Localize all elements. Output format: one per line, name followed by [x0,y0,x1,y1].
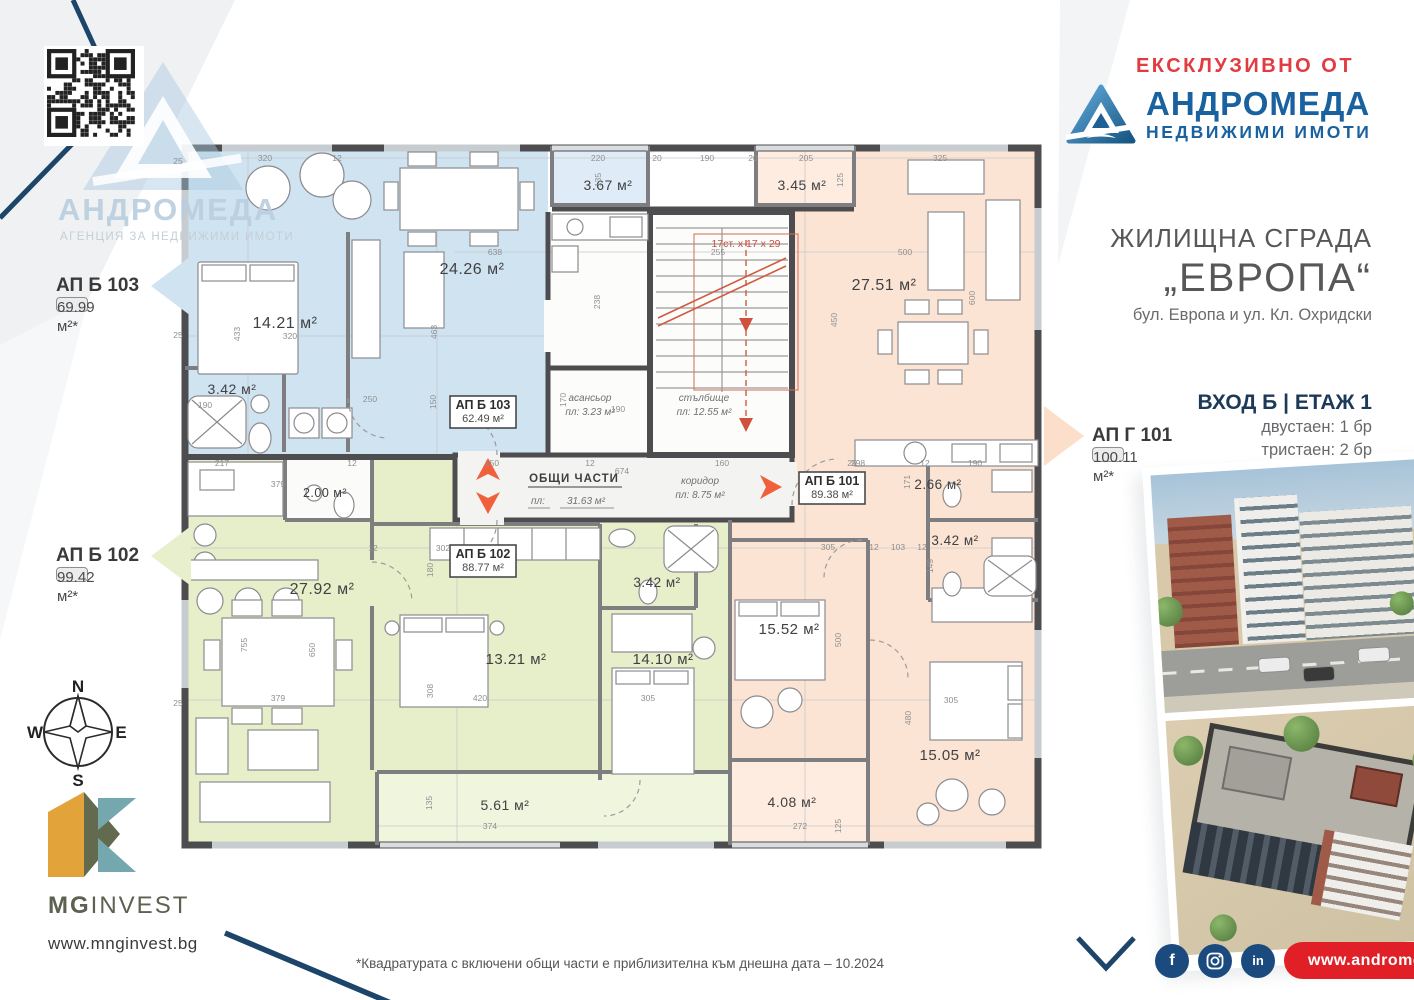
svg-text:190: 190 [968,458,982,468]
svg-text:638: 638 [488,247,502,257]
facebook-icon[interactable]: f [1155,944,1189,978]
svg-text:88.77 м²: 88.77 м² [462,562,504,574]
svg-text:27.92 м²: 27.92 м² [290,581,355,598]
svg-text:25: 25 [173,698,183,708]
corridor [455,455,792,520]
svg-text:12: 12 [869,542,879,552]
svg-text:12: 12 [585,458,595,468]
callout-ap-g101: АП Г 101 100.11 м²* [1044,406,1172,466]
watermark-tagline: АГЕНЦИЯ ЗА НЕДВИЖИМИ ИМОТИ [60,231,294,243]
callout-id: АП Г 101 [1092,425,1172,447]
svg-text:15.05 м²: 15.05 м² [919,747,980,764]
svg-text:480: 480 [903,711,913,725]
agency-logo-block: АНДРОМЕДА НЕДВИЖИМИ ИМОТИ [1066,84,1396,146]
svg-text:305: 305 [821,542,835,552]
svg-text:5.61 м²: 5.61 м² [481,797,530,813]
poster: { "colors":{"accent_red":"#E23B41","bran… [0,0,1414,1000]
linkedin-icon[interactable]: in [1241,944,1275,978]
svg-text:135: 135 [593,173,603,187]
svg-text:433: 433 [232,327,242,341]
svg-text:500: 500 [833,633,843,647]
svg-text:379: 379 [271,479,285,489]
tree-icon [1209,914,1238,943]
svg-text:W: W [27,723,44,742]
svg-text:асансьор: асансьор [568,393,611,404]
qr-code [44,46,144,146]
svg-text:14.21 м²: 14.21 м² [253,315,318,332]
svg-text:3.42 м²: 3.42 м² [208,381,257,397]
tree-icon [1172,735,1204,767]
agency-tagline: НЕДВИЖИМИ ИМОТИ [1146,121,1371,143]
car-icon [1302,666,1335,683]
developer-block: MGINVEST www.mnginvest.bg [48,792,268,954]
svg-text:217: 217 [215,458,229,468]
svg-text:150: 150 [485,458,499,468]
svg-text:420: 420 [473,693,487,703]
exclusive-label: ЕКСКЛУЗИВНО ОТ [1100,55,1390,78]
facebook-glyph: f [1169,952,1174,970]
svg-text:62.49 м²: 62.49 м² [462,413,504,425]
building-white-wing [1299,506,1414,641]
svg-text:325: 325 [933,153,947,163]
developer-name-bold: MG [48,892,91,919]
callout-ap-b103: АП Б 103 69.99 м²* [56,256,191,316]
svg-text:E: E [115,723,126,742]
svg-text:12: 12 [368,543,378,553]
svg-text:125: 125 [833,819,843,833]
svg-text:272: 272 [793,821,807,831]
svg-text:149: 149 [925,559,935,573]
svg-text:320: 320 [283,331,297,341]
developer-name-light: INVEST [91,892,190,919]
svg-text:АП Б 103: АП Б 103 [456,398,511,412]
callout-triangle-icon [151,256,191,316]
agency-website-pill[interactable]: www.andromeda.bg [1284,942,1414,979]
unit-mix-line: тристаен: 2 бр [1198,439,1373,462]
agency-name: АНДРОМЕДА [1146,87,1371,121]
car-icon [1258,656,1291,673]
svg-text:3.45 м²: 3.45 м² [778,177,827,193]
entrance-title: ВХОД Б | ЕТАЖ 1 [1198,390,1373,416]
svg-text:пл: 8.75 м²: пл: 8.75 м² [675,490,725,501]
project-type: ЖИЛИЩНА СГРАДА [1110,222,1372,254]
svg-text:305: 305 [641,693,655,703]
svg-text:3.42 м²: 3.42 м² [931,533,978,548]
svg-text:АП Б 102: АП Б 102 [456,547,511,561]
svg-text:пл: 12.55 м²: пл: 12.55 м² [677,407,732,418]
svg-text:ОБЩИ ЧАСТИ: ОБЩИ ЧАСТИ [529,473,619,485]
callout-triangle-icon [151,526,191,586]
callout-area: 99.42 м²* [56,567,88,582]
svg-text:374: 374 [483,821,497,831]
building-facade-white [1311,829,1413,920]
svg-text:20: 20 [748,153,758,163]
svg-text:190: 190 [198,400,212,410]
svg-text:S: S [72,771,83,790]
instagram-glyph [1206,952,1224,970]
linkedin-glyph: in [1252,953,1264,968]
svg-text:12: 12 [347,458,357,468]
svg-text:89.38 м²: 89.38 м² [811,489,853,501]
svg-text:2.66 м²: 2.66 м² [914,477,961,492]
svg-text:25: 25 [847,458,857,468]
svg-text:коридор: коридор [681,476,719,487]
callout-id: АП Б 102 [56,545,139,567]
project-address: бул. Европа и ул. Кл. Охридски [1110,302,1372,328]
project-block: ЖИЛИЩНА СГРАДА „ЕВРОПА“ бул. Европа и ул… [1110,222,1372,328]
svg-text:674: 674 [615,466,629,476]
svg-text:103: 103 [891,542,905,552]
svg-text:500: 500 [898,247,912,257]
svg-text:180: 180 [425,563,435,577]
svg-text:600: 600 [967,291,977,305]
social-links-row: f in www.andromeda.bg [1155,942,1414,979]
svg-text:12: 12 [917,542,927,552]
callout-id: АП Б 103 [56,275,139,297]
building-renders-card [1142,450,1414,972]
svg-text:пл: 3.23 м²: пл: 3.23 м² [565,407,615,418]
svg-text:150: 150 [428,395,438,409]
project-name: „ЕВРОПА“ [1110,254,1372,302]
callout-triangle-icon [1044,406,1084,466]
mginvest-logo-icon [48,792,140,877]
svg-text:пл:: пл: [531,496,545,507]
developer-name: MGINVEST [48,892,268,920]
unit-mix-line: двустаен: 1 бр [1198,416,1373,439]
svg-text:4.08 м²: 4.08 м² [768,794,817,810]
svg-text:3.42 м²: 3.42 м² [633,575,680,590]
svg-text:220: 220 [591,153,605,163]
svg-text:190: 190 [700,153,714,163]
svg-text:14.10 м²: 14.10 м² [632,651,693,668]
svg-text:12: 12 [920,458,930,468]
svg-text:255: 255 [711,247,725,257]
building-brick-tower [1167,515,1239,649]
svg-text:20: 20 [652,153,662,163]
svg-text:305: 305 [944,695,958,705]
svg-text:27.51 м²: 27.51 м² [852,277,917,294]
building-white-tower [1234,495,1306,645]
svg-text:170: 170 [558,393,568,407]
developer-website[interactable]: www.mnginvest.bg [48,934,268,954]
watermark-name: АНДРОМЕДА [58,192,278,227]
svg-text:135: 135 [424,796,434,810]
svg-text:2.00 м²: 2.00 м² [303,486,347,500]
svg-text:320: 320 [258,153,272,163]
callout-area: 100.11 м²* [1092,447,1124,462]
svg-text:302: 302 [436,543,450,553]
svg-text:250: 250 [363,394,377,404]
svg-text:125: 125 [835,173,845,187]
svg-text:12: 12 [332,153,342,163]
svg-text:755: 755 [239,638,249,652]
svg-text:379: 379 [271,693,285,703]
svg-text:308: 308 [425,684,435,698]
svg-text:15.52 м²: 15.52 м² [758,621,819,638]
disclaimer: *Квадратурата с включени общи части е пр… [320,956,920,971]
svg-text:13.21 м²: 13.21 м² [485,651,546,668]
svg-text:24.26 м²: 24.26 м² [440,261,505,278]
svg-text:АП Б 101: АП Б 101 [805,474,860,488]
svg-text:стълбище: стълбище [679,392,730,404]
andromeda-triangle-logo-icon [1066,84,1136,146]
instagram-icon[interactable] [1198,944,1232,978]
svg-text:238: 238 [592,295,602,309]
building-render-aerial-view [1165,704,1414,956]
svg-text:25: 25 [173,156,183,166]
svg-text:190: 190 [611,404,625,414]
callout-ap-b102: АП Б 102 99.42 м²* [56,526,191,586]
svg-text:25: 25 [173,330,183,340]
svg-text:31.63 м²: 31.63 м² [567,496,606,507]
svg-text:160: 160 [715,458,729,468]
aerial-building [1181,723,1414,919]
svg-text:463: 463 [429,325,439,339]
svg-text:450: 450 [829,313,839,327]
svg-text:205: 205 [799,153,813,163]
svg-text:650: 650 [307,643,317,657]
svg-text:3.67 м²: 3.67 м² [584,177,633,193]
compass: N E S W [27,677,127,790]
callout-area: 69.99 м²* [56,297,88,312]
entrance-block: ВХОД Б | ЕТАЖ 1 двустаен: 1 бр тристаен:… [1198,390,1373,462]
svg-text:171: 171 [902,475,912,489]
svg-text:N: N [72,677,84,696]
car-icon [1357,646,1390,663]
building-render-street-view [1150,458,1414,713]
